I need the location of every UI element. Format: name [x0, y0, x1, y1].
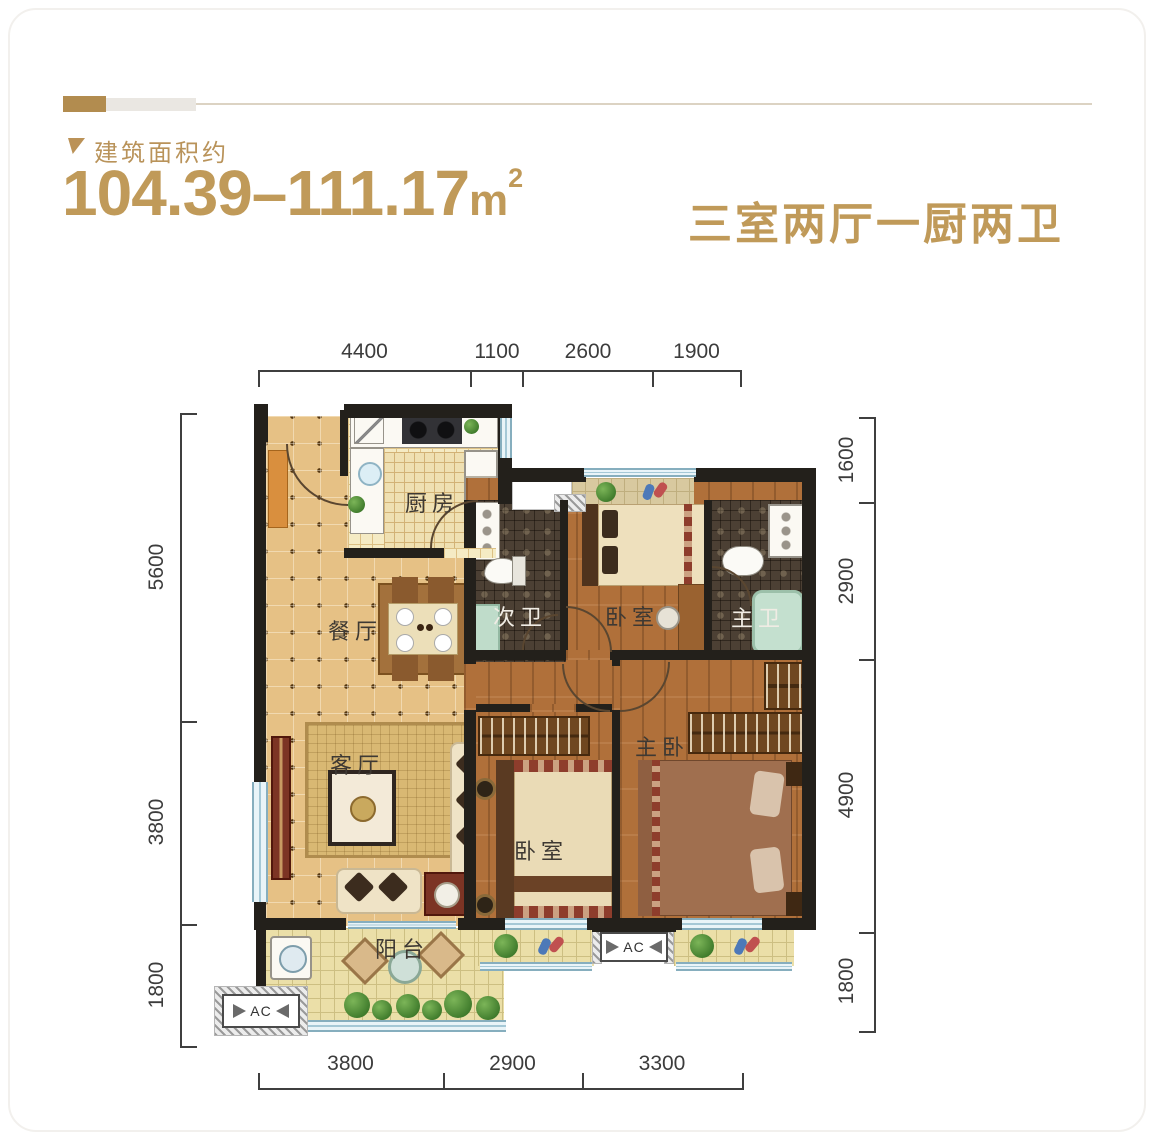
- sliding-door: [348, 921, 456, 929]
- bed-headboard: [582, 504, 598, 586]
- side-table-plate: [434, 882, 460, 908]
- area-unit: m: [469, 176, 508, 225]
- doorway: [444, 548, 496, 558]
- ac-unit: AC: [600, 932, 668, 962]
- bed-trim: [514, 760, 612, 772]
- dining-decor: [417, 624, 424, 631]
- bed-pillow: [602, 510, 618, 538]
- kitchen-sink-counter: [350, 448, 384, 534]
- sink-icon: [358, 462, 382, 486]
- plant-icon: [372, 1000, 392, 1020]
- room-label-master-bedroom: 主卧: [630, 730, 694, 762]
- wall: [344, 404, 512, 418]
- plant-icon: [348, 496, 365, 513]
- dim-line-bottom: [258, 1088, 744, 1090]
- plant-icon: [476, 996, 500, 1020]
- bed-trim: [652, 760, 660, 916]
- window: [505, 918, 587, 930]
- bed-footboard: [638, 760, 652, 916]
- bed-trim: [684, 504, 692, 586]
- dim-line-right: [874, 417, 876, 1033]
- room-label-dining: 餐厅: [323, 614, 387, 646]
- bed-pillow: [602, 546, 618, 574]
- ac-arrow-icon: [649, 940, 662, 954]
- bed-pillow: [749, 770, 785, 818]
- floorplan-page: 建筑面积约 104.39–111.17m2 三室两厅一厨两卫: [0, 0, 1154, 1140]
- bedroom-balcony-floor: [572, 478, 694, 504]
- bed-trim: [514, 906, 612, 918]
- washing-machine-door: [279, 945, 307, 973]
- ac-arrow-icon: [276, 1004, 289, 1018]
- doorway: [530, 704, 576, 712]
- wardrobe: [764, 662, 806, 710]
- dim-bottom-2: 2900: [443, 1052, 582, 1076]
- ac-unit: AC: [222, 994, 300, 1028]
- wall: [254, 438, 266, 784]
- room-label-bedroom-bottom: 卧室: [509, 834, 573, 866]
- plant-icon: [444, 990, 472, 1018]
- dim-tick: [470, 370, 472, 387]
- dim-tick: [859, 659, 876, 661]
- dim-line-top: [258, 370, 742, 372]
- dim-tick: [859, 1031, 876, 1033]
- dim-top-2: 1100: [471, 340, 523, 364]
- wall: [344, 548, 444, 558]
- dim-right-4: 1800: [835, 958, 859, 1005]
- plate-icon: [434, 608, 452, 626]
- dim-tick: [180, 413, 197, 415]
- window: [676, 962, 792, 971]
- area-value: 104.39–111.17m2: [62, 156, 523, 230]
- dim-tick: [180, 924, 197, 926]
- wall: [474, 650, 814, 660]
- dim-top-1: 4400: [258, 340, 471, 364]
- cutting-board: [354, 417, 384, 444]
- window: [584, 468, 696, 477]
- header-accent-bar: [63, 96, 106, 112]
- plate-icon: [434, 634, 452, 652]
- dim-right-3: 4900: [835, 772, 859, 819]
- dim-right-2: 2900: [835, 558, 859, 605]
- wall: [802, 468, 816, 930]
- header-light-bar: [106, 98, 196, 111]
- dim-tick: [859, 932, 876, 934]
- dim-right-1: 1600: [835, 437, 859, 484]
- tv-cabinet: [271, 736, 291, 880]
- dim-bottom-3: 3300: [582, 1052, 742, 1076]
- plant-icon: [396, 994, 420, 1018]
- plant-icon: [464, 419, 479, 434]
- plant-icon: [596, 482, 616, 502]
- dim-tick: [522, 370, 524, 387]
- wall: [592, 920, 676, 932]
- room-label-living: 客厅: [325, 748, 389, 780]
- wall: [254, 918, 346, 930]
- toilet-tank: [512, 556, 526, 586]
- ac-label: AC: [623, 939, 644, 955]
- shoe-cabinet: [268, 450, 288, 528]
- ceiling-light-icon: [474, 778, 496, 800]
- plant-icon: [344, 992, 370, 1018]
- wall: [694, 468, 816, 482]
- doorway: [612, 666, 620, 710]
- dim-tick: [742, 1073, 744, 1090]
- washing-machine-icon: [768, 504, 804, 558]
- table-decor: [350, 796, 376, 822]
- room-label-balcony: 阳台: [370, 932, 434, 964]
- dim-bottom-1: 3800: [258, 1052, 443, 1076]
- doorway: [464, 664, 476, 710]
- ledge-hatch: [554, 494, 586, 512]
- dim-top-3: 2600: [523, 340, 653, 364]
- window: [480, 962, 592, 971]
- window: [682, 918, 762, 930]
- plant-icon: [494, 934, 518, 958]
- dining-decor: [426, 624, 433, 631]
- dim-tick: [859, 417, 876, 419]
- wardrobe: [688, 712, 806, 754]
- window: [252, 782, 268, 902]
- wall: [704, 500, 712, 652]
- dim-left-1: 5600: [145, 544, 169, 591]
- area-flag-icon: [68, 138, 85, 154]
- room-label-bath-master: 主卫: [726, 601, 790, 633]
- bed-pillow: [749, 846, 784, 893]
- window: [500, 418, 512, 458]
- plate-icon: [396, 634, 414, 652]
- dim-tick: [180, 721, 197, 723]
- plant-icon: [422, 1000, 442, 1020]
- dim-top-4: 1900: [653, 340, 740, 364]
- dim-tick: [258, 370, 260, 387]
- dim-tick: [740, 370, 742, 387]
- stove-icon: [402, 416, 462, 444]
- ac-label: AC: [250, 1003, 271, 1019]
- room-label-bedroom-top: 卧室: [600, 600, 664, 632]
- header-rule: [196, 103, 1092, 105]
- dim-tick: [180, 1046, 197, 1048]
- bed-blanket-fold: [514, 876, 612, 892]
- plate-icon: [396, 608, 414, 626]
- wardrobe: [478, 716, 590, 756]
- wall: [512, 468, 586, 482]
- dim-tick: [652, 370, 654, 387]
- room-label-bath-secondary: 次卫: [488, 600, 552, 632]
- ac-arrow-icon: [606, 940, 619, 954]
- room-label-kitchen: 厨房: [400, 486, 464, 518]
- dim-left-2: 3800: [145, 799, 169, 846]
- layout-title: 三室两厅一厨两卫: [688, 188, 1064, 252]
- dim-left-3: 1800: [145, 962, 169, 1009]
- dim-tick: [859, 502, 876, 504]
- area-range: 104.39–111.17: [62, 157, 469, 229]
- wall: [254, 404, 268, 442]
- ac-arrow-icon: [233, 1004, 246, 1018]
- ceiling-light-icon: [474, 894, 496, 916]
- plant-icon: [690, 934, 714, 958]
- area-exponent: 2: [508, 163, 523, 193]
- dim-line-left: [180, 413, 182, 1048]
